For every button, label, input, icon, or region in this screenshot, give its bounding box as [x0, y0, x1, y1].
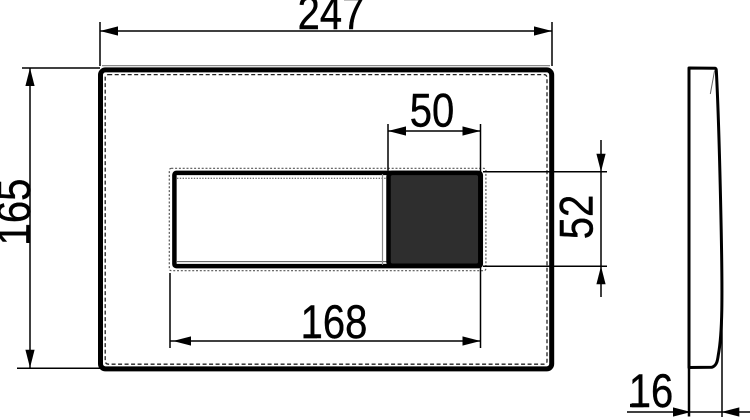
- svg-text:168: 168: [301, 297, 368, 349]
- svg-text:165: 165: [0, 179, 41, 246]
- svg-text:50: 50: [410, 86, 454, 138]
- svg-text:247: 247: [298, 0, 365, 40]
- svg-text:52: 52: [552, 195, 604, 239]
- svg-text:16: 16: [629, 366, 673, 418]
